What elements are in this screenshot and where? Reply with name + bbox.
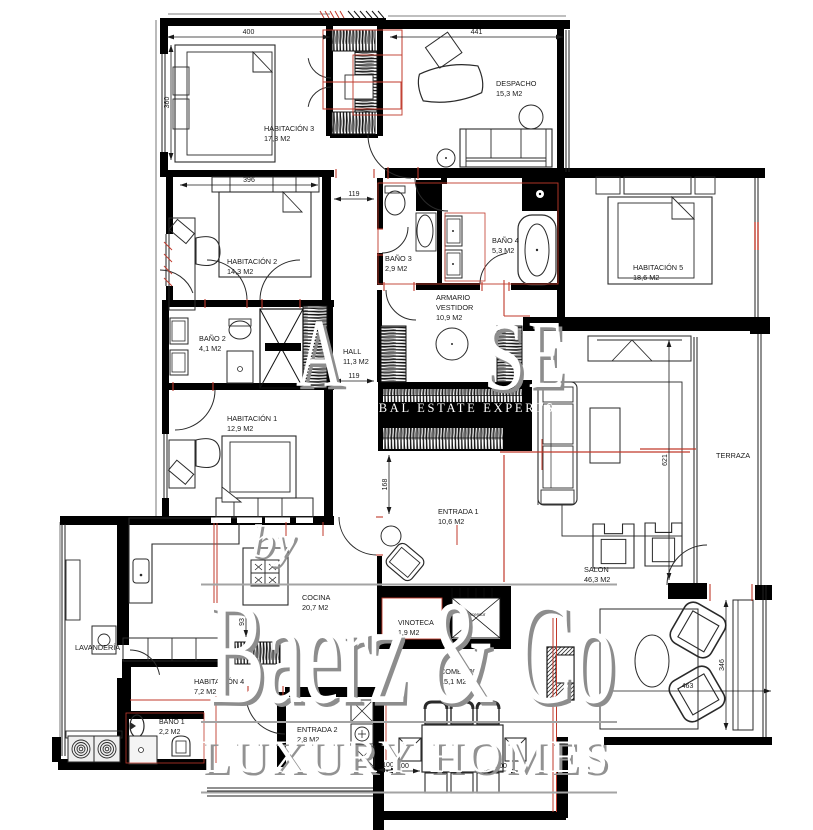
svg-text:10,9 M2: 10,9 M2 [436,313,462,322]
svg-text:ENTRADA 1: ENTRADA 1 [438,507,479,516]
svg-text:11,3 M2: 11,3 M2 [343,357,369,366]
svg-text:A: A [296,300,343,408]
svg-text:441: 441 [471,29,483,36]
svg-text:BAÑO 4: BAÑO 4 [492,236,519,245]
svg-text:12,9 M2: 12,9 M2 [227,424,253,433]
svg-text:2,2 M2: 2,2 M2 [159,729,181,736]
svg-text:E: E [528,301,564,409]
svg-text:Baerz & Co: Baerz & Co [208,571,615,735]
svg-text:400: 400 [243,29,255,36]
svg-text:119: 119 [348,373,359,380]
svg-text:S: S [483,303,525,411]
svg-text:HABITACIÓN 3: HABITACIÓN 3 [264,124,314,133]
svg-text:HABITACIÓN 5: HABITACIÓN 5 [633,263,683,272]
svg-text:BAÑO 3: BAÑO 3 [385,254,412,263]
svg-text:by: by [251,516,296,568]
svg-text:10,6 M2: 10,6 M2 [438,517,464,526]
svg-text:463: 463 [682,683,694,690]
svg-text:4,1 M2: 4,1 M2 [199,344,221,353]
svg-text:VESTIDOR: VESTIDOR [436,303,473,312]
svg-text:5,3 M2: 5,3 M2 [492,246,514,255]
svg-text:GLOBAL ESTATE EXPERTS: GLOBAL ESTATE EXPERTS [345,401,555,415]
svg-text:LUXURY HOMES: LUXURY HOMES [201,731,615,783]
svg-text:346: 346 [719,659,726,671]
svg-text:TERRAZA: TERRAZA [716,451,750,460]
svg-text:BAÑO 2: BAÑO 2 [199,334,226,343]
svg-text:HABITACIÓN 1: HABITACIÓN 1 [227,414,277,423]
svg-text:168: 168 [382,479,389,491]
svg-text:2,9 M2: 2,9 M2 [385,264,407,273]
svg-text:14,3 M2: 14,3 M2 [227,267,253,276]
svg-text:17,3 M2: 17,3 M2 [264,134,290,143]
svg-text:ARMARIO: ARMARIO [436,293,470,302]
svg-text:18,6 M2: 18,6 M2 [633,273,659,282]
svg-text:HABITACIÓN 2: HABITACIÓN 2 [227,257,277,266]
svg-text:360: 360 [164,97,171,109]
svg-text:119: 119 [348,191,359,198]
svg-text:DESPACHO: DESPACHO [496,79,537,88]
svg-text:LAVANDERÍA: LAVANDERÍA [75,643,120,652]
svg-text:621: 621 [662,454,669,466]
svg-text:396: 396 [243,177,255,184]
svg-text:BAÑO 1: BAÑO 1 [159,717,185,726]
svg-text:15,3 M2: 15,3 M2 [496,89,522,98]
